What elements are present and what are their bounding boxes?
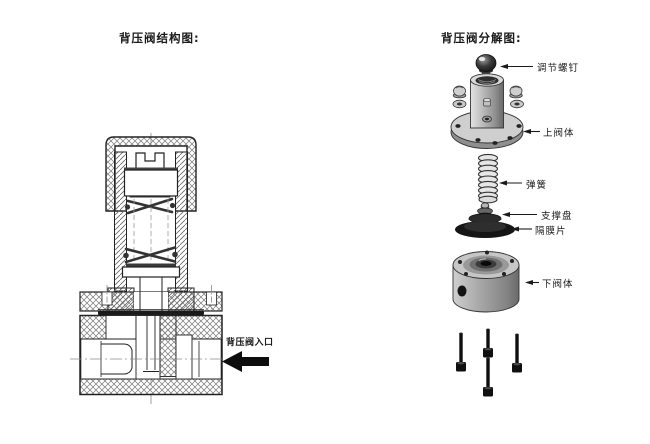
exploded-diaphragm [455, 221, 515, 238]
label-spring: 弹簧 [526, 177, 547, 191]
leader-arrow-upper-valve-body [523, 129, 540, 134]
label-adjusting-screw: 调节螺钉 [537, 60, 579, 74]
leader-arrow-support-plate [502, 212, 537, 217]
label-support-plate: 支撑盘 [541, 208, 573, 222]
outlet-slot [176, 335, 192, 379]
spring-seat-block [125, 170, 178, 196]
exploded-bolts [456, 329, 522, 397]
upper-chamber [106, 316, 136, 342]
leader-arrow-adjusting-screw [500, 64, 533, 69]
bonnet-foot-right [168, 288, 194, 311]
leader-arrow-spring [499, 181, 522, 186]
structural-diagram-title: 背压阀结构图: [119, 30, 200, 46]
page: 背压阀结构图: 背压阀分解图: 调节螺钉 上阀体 弹簧 支撑盘 隔膜片 下阀体 … [0, 0, 650, 444]
bolt-left [456, 333, 466, 372]
exploded-spring [479, 154, 498, 202]
flange-center-gap [134, 292, 168, 311]
exploded-upper-valve-body [451, 74, 524, 149]
inlet-arrow-icon [222, 351, 269, 372]
center-divider [160, 316, 176, 377]
exploded-support-plate [469, 203, 501, 223]
leader-arrow-lower-valve-body [525, 280, 539, 285]
exploded-lower-valve-body [453, 251, 519, 313]
bolt-right [512, 334, 522, 373]
structural-diagram [70, 133, 269, 404]
bolt-center-back [483, 329, 493, 358]
inlet-label: 背压阀入口 [226, 335, 274, 348]
exploded-diagram-title: 背压阀分解图: [441, 30, 522, 46]
piston-block [123, 267, 180, 277]
side-port-hole [458, 286, 467, 297]
exploded-diagram [451, 55, 540, 397]
bolt-center-front [483, 358, 493, 397]
center-channel [136, 316, 160, 380]
label-lower-valve-body: 下阀体 [542, 276, 574, 290]
label-upper-valve-body: 上阀体 [543, 125, 575, 139]
label-diaphragm: 隔膜片 [535, 223, 567, 237]
